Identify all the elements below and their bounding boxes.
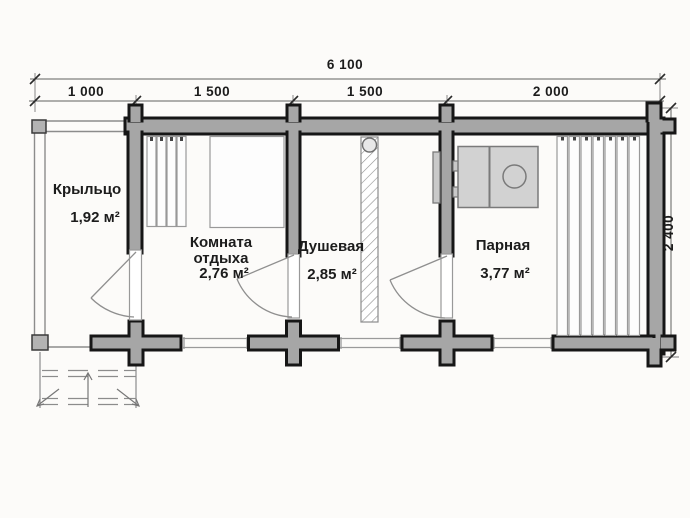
room-name-restroom: Комната отдыха <box>181 235 261 267</box>
room-name-porch: Крыльцо <box>47 182 127 198</box>
bottom-wall-thin-segments <box>183 337 552 349</box>
dim-depth: 2 400 <box>662 203 678 263</box>
stairs-icon <box>37 352 139 408</box>
wall-partition-2 <box>440 132 453 256</box>
floor-plan: 6 100 1 000 1 500 1 500 2 000 2 400 Крыл… <box>0 0 690 518</box>
wall-bottom-thick <box>553 336 654 350</box>
log-cross <box>91 321 181 365</box>
bench-icon <box>147 137 186 227</box>
porch-post-bottom <box>32 335 48 350</box>
shower-screen-icon <box>361 137 378 322</box>
room-name-steamroom: Парная <box>463 238 543 254</box>
wall-top <box>125 118 664 134</box>
porch-outline <box>32 120 128 350</box>
sauna-bench-planks <box>557 137 640 336</box>
door-porch-to-restroom <box>91 250 142 320</box>
dim-total-width: 6 100 <box>305 58 385 72</box>
dim-segment-1: 1 000 <box>51 85 121 99</box>
stairs-arrows <box>37 373 139 407</box>
room-name-shower: Душевая <box>290 239 372 255</box>
table-icon <box>210 137 284 228</box>
log-cross <box>402 321 492 365</box>
dim-segment-3: 1 500 <box>330 85 400 99</box>
log-cross <box>249 321 339 365</box>
room-area-restroom: 2,76 м² <box>184 266 264 282</box>
dim-segment-2: 1 500 <box>177 85 247 99</box>
room-area-porch: 1,92 м² <box>55 210 135 226</box>
room-area-shower: 2,85 м² <box>292 267 372 283</box>
door-shower-to-steamroom <box>390 254 453 318</box>
plan-drawing <box>0 0 690 518</box>
room-area-steamroom: 3,77 м² <box>465 266 545 282</box>
shower-head-icon <box>363 138 377 152</box>
dim-segment-4: 2 000 <box>516 85 586 99</box>
porch-post-top <box>32 120 46 133</box>
chimney-icon <box>503 165 526 188</box>
wall-left <box>128 132 142 253</box>
